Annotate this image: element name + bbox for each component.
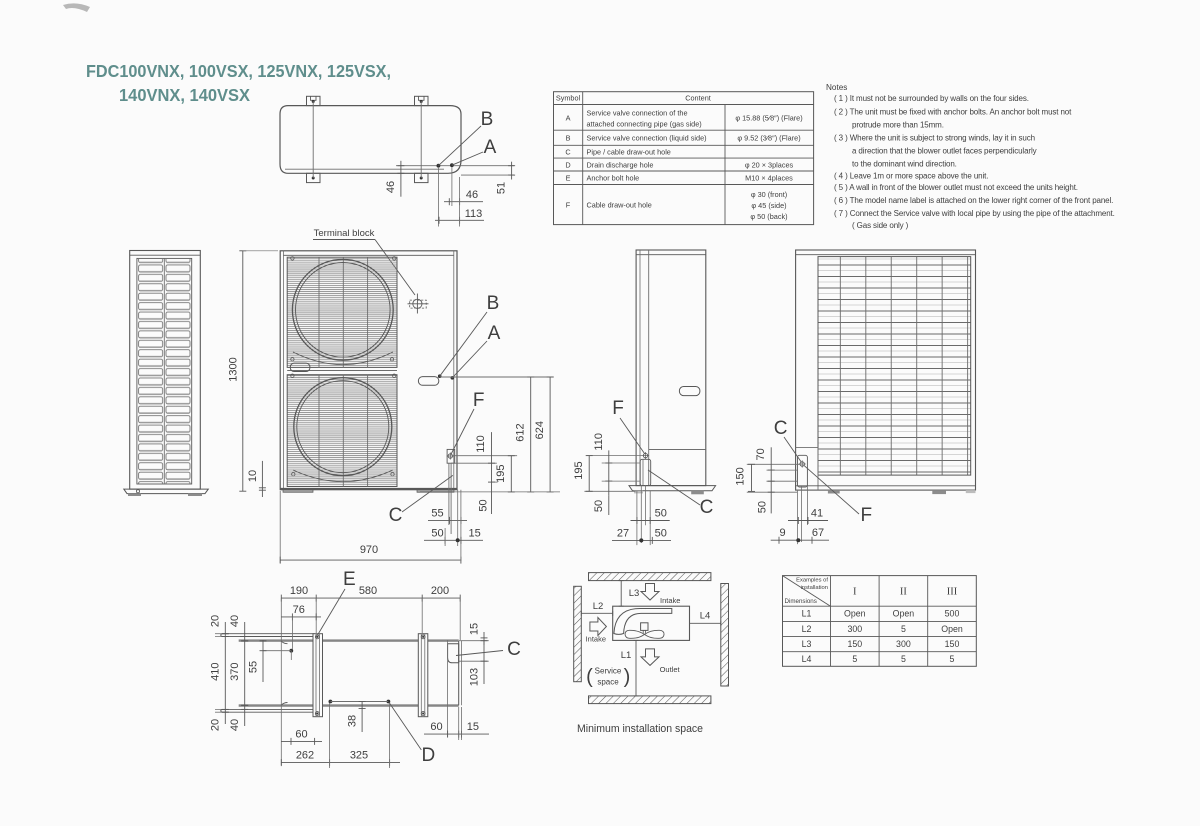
svg-text:( 2 ) The unit must be fixed: ( 2 ) The unit must be fixed with anchor… bbox=[834, 108, 1072, 117]
svg-text:L3: L3 bbox=[802, 639, 812, 649]
svg-text:L1: L1 bbox=[802, 609, 812, 619]
svg-text:E: E bbox=[343, 569, 356, 590]
svg-text:Cable draw-out hole: Cable draw-out hole bbox=[587, 201, 652, 210]
svg-text:Open: Open bbox=[893, 609, 915, 619]
svg-text:50: 50 bbox=[655, 508, 667, 520]
svg-text:space: space bbox=[597, 678, 619, 687]
svg-text:to the dominant wind direction: to the dominant wind direction. bbox=[852, 160, 957, 169]
svg-text:M10 × 4places: M10 × 4places bbox=[745, 174, 793, 183]
svg-text:Pipe / cable draw-out hole: Pipe / cable draw-out hole bbox=[587, 147, 671, 156]
svg-text:L4: L4 bbox=[700, 611, 711, 622]
svg-text:262: 262 bbox=[296, 750, 314, 762]
svg-text:20: 20 bbox=[209, 615, 221, 627]
svg-text:46: 46 bbox=[466, 189, 478, 201]
svg-text:installation: installation bbox=[801, 585, 828, 591]
svg-text:B: B bbox=[487, 293, 500, 314]
svg-text:1300: 1300 bbox=[228, 357, 240, 381]
svg-text:624: 624 bbox=[534, 421, 546, 439]
svg-text:110: 110 bbox=[593, 433, 605, 451]
svg-text:II: II bbox=[900, 587, 907, 598]
svg-text:L4: L4 bbox=[802, 654, 812, 664]
svg-text:300: 300 bbox=[847, 624, 862, 634]
svg-text:L3: L3 bbox=[629, 588, 640, 599]
svg-text:200: 200 bbox=[431, 585, 449, 597]
svg-text:15: 15 bbox=[469, 623, 481, 635]
svg-text:Open: Open bbox=[844, 609, 866, 619]
svg-text:B: B bbox=[566, 134, 571, 143]
svg-text:Terminal block: Terminal block bbox=[314, 228, 375, 239]
svg-text:103: 103 bbox=[469, 668, 481, 686]
svg-text:60: 60 bbox=[430, 721, 442, 733]
svg-text:41: 41 bbox=[811, 508, 823, 520]
svg-text:Dimensions: Dimensions bbox=[785, 598, 817, 605]
svg-text:FDC100VNX, 100VSX, 125VNX, 125: FDC100VNX, 100VSX, 125VNX, 125VSX, bbox=[86, 61, 391, 81]
svg-text:50: 50 bbox=[431, 527, 443, 539]
svg-text:A: A bbox=[484, 137, 497, 158]
svg-text:φ 50 (back): φ 50 (back) bbox=[750, 212, 787, 221]
svg-text:20: 20 bbox=[209, 719, 221, 731]
svg-text:( 7 ) Connect the Service val: ( 7 ) Connect the Service valve with loc… bbox=[834, 209, 1115, 218]
svg-text:190: 190 bbox=[290, 585, 308, 597]
svg-text:Examples of: Examples of bbox=[796, 578, 828, 584]
svg-text:38: 38 bbox=[347, 715, 359, 727]
svg-text:5: 5 bbox=[950, 654, 955, 664]
svg-text:70: 70 bbox=[755, 448, 767, 460]
svg-text:L2: L2 bbox=[802, 624, 812, 634]
svg-text:67: 67 bbox=[812, 527, 824, 539]
svg-text:9: 9 bbox=[780, 527, 786, 539]
svg-text:76: 76 bbox=[293, 604, 305, 616]
svg-text:55: 55 bbox=[248, 661, 260, 673]
svg-text:500: 500 bbox=[945, 609, 960, 619]
svg-text:51: 51 bbox=[495, 182, 507, 194]
svg-text:attached connecting pipe (gas: attached connecting pipe (gas side) bbox=[587, 120, 702, 129]
svg-text:Intake: Intake bbox=[660, 596, 680, 605]
svg-text:580: 580 bbox=[359, 585, 377, 597]
svg-text:( 6 ) The model name label is: ( 6 ) The model name label is attached o… bbox=[834, 196, 1113, 205]
svg-text:( 3 ) Where the unit is subje: ( 3 ) Where the unit is subject to stron… bbox=[834, 134, 1035, 143]
svg-text:970: 970 bbox=[360, 544, 378, 556]
svg-text:protrude more than 15mm.: protrude more than 15mm. bbox=[852, 121, 944, 130]
svg-text:φ 9.52 (3⁄8″) (Flare): φ 9.52 (3⁄8″) (Flare) bbox=[737, 134, 800, 143]
svg-text:L1: L1 bbox=[621, 650, 632, 661]
svg-text:( 4 ) Leave 1m or more space: ( 4 ) Leave 1m or more space above the u… bbox=[834, 172, 988, 181]
svg-text:Open: Open bbox=[941, 624, 963, 634]
svg-text:140VNX, 140VSX: 140VNX, 140VSX bbox=[119, 85, 250, 105]
svg-text:195: 195 bbox=[495, 465, 507, 483]
svg-text:F: F bbox=[860, 505, 872, 526]
svg-text:φ 15.88 (5⁄8″) (Flare): φ 15.88 (5⁄8″) (Flare) bbox=[735, 114, 802, 123]
svg-text:D: D bbox=[422, 745, 436, 766]
svg-text:15: 15 bbox=[468, 527, 480, 539]
svg-text:612: 612 bbox=[515, 423, 527, 441]
svg-text:Service valve connection of th: Service valve connection of the bbox=[587, 109, 688, 118]
svg-text:113: 113 bbox=[465, 208, 483, 220]
svg-text:Intake: Intake bbox=[586, 635, 606, 644]
svg-text:40: 40 bbox=[229, 615, 241, 627]
svg-text:): ) bbox=[624, 666, 631, 688]
svg-text:50: 50 bbox=[757, 501, 769, 513]
svg-text:Notes: Notes bbox=[826, 83, 847, 92]
svg-text:L2: L2 bbox=[593, 601, 604, 612]
svg-text:( Gas side only ): ( Gas side only ) bbox=[852, 221, 909, 230]
svg-text:C: C bbox=[389, 505, 403, 526]
svg-text:Outlet: Outlet bbox=[660, 665, 681, 674]
svg-text:40: 40 bbox=[229, 719, 241, 731]
svg-text:Service: Service bbox=[595, 667, 622, 676]
svg-text:325: 325 bbox=[350, 750, 368, 762]
svg-text:50: 50 bbox=[655, 527, 667, 539]
svg-text:60: 60 bbox=[295, 728, 307, 740]
svg-text:110: 110 bbox=[475, 435, 487, 453]
svg-text:300: 300 bbox=[896, 639, 911, 649]
svg-text:150: 150 bbox=[847, 639, 862, 649]
svg-text:F: F bbox=[566, 201, 571, 210]
svg-text:370: 370 bbox=[229, 663, 241, 681]
svg-text:C: C bbox=[507, 639, 521, 660]
svg-text:50: 50 bbox=[593, 500, 605, 512]
svg-text:Service valve connection (liqu: Service valve connection (liquid side) bbox=[587, 134, 707, 143]
svg-text:46: 46 bbox=[385, 181, 397, 193]
svg-text:Symbol: Symbol bbox=[556, 94, 581, 103]
svg-text:Drain discharge hole: Drain discharge hole bbox=[587, 160, 654, 169]
svg-text:150: 150 bbox=[735, 467, 747, 485]
svg-text:φ 45 (side): φ 45 (side) bbox=[751, 201, 786, 210]
svg-text:410: 410 bbox=[209, 663, 221, 681]
svg-text:a direction that the blower ou: a direction that the blower outlet faces… bbox=[852, 147, 1037, 156]
svg-text:150: 150 bbox=[945, 639, 960, 649]
svg-text:10: 10 bbox=[247, 470, 259, 482]
svg-text:III: III bbox=[947, 587, 958, 598]
svg-text:195: 195 bbox=[573, 461, 585, 479]
svg-text:55: 55 bbox=[431, 508, 443, 520]
svg-text:F: F bbox=[612, 398, 624, 419]
svg-text:5: 5 bbox=[901, 654, 906, 664]
svg-text:E: E bbox=[566, 174, 571, 183]
svg-text:(: ( bbox=[586, 666, 593, 688]
svg-text:5: 5 bbox=[901, 624, 906, 634]
svg-text:Content: Content bbox=[685, 94, 711, 103]
svg-text:Anchor bolt hole: Anchor bolt hole bbox=[587, 174, 640, 183]
svg-text:( 1 ) It must not be surround: ( 1 ) It must not be surrounded by walls… bbox=[834, 94, 1029, 103]
svg-text:50: 50 bbox=[478, 499, 490, 511]
svg-text:C: C bbox=[565, 147, 570, 156]
svg-text:Minimum installation space: Minimum installation space bbox=[577, 723, 703, 735]
svg-text:F: F bbox=[473, 390, 485, 411]
svg-text:A: A bbox=[566, 114, 571, 123]
svg-text:φ 20 × 3places: φ 20 × 3places bbox=[745, 160, 794, 169]
svg-text:D: D bbox=[565, 160, 570, 169]
svg-text:A: A bbox=[488, 323, 501, 344]
svg-text:φ 30 (front): φ 30 (front) bbox=[751, 190, 787, 199]
svg-text:C: C bbox=[700, 497, 714, 518]
svg-text:15: 15 bbox=[467, 721, 479, 733]
svg-text:I: I bbox=[853, 587, 857, 598]
svg-text:( 5 ) A wall in front of the: ( 5 ) A wall in front of the blower outl… bbox=[834, 183, 1078, 192]
svg-text:C: C bbox=[774, 418, 788, 439]
svg-text:27: 27 bbox=[617, 527, 629, 539]
svg-text:B: B bbox=[481, 109, 494, 130]
svg-text:5: 5 bbox=[852, 654, 857, 664]
